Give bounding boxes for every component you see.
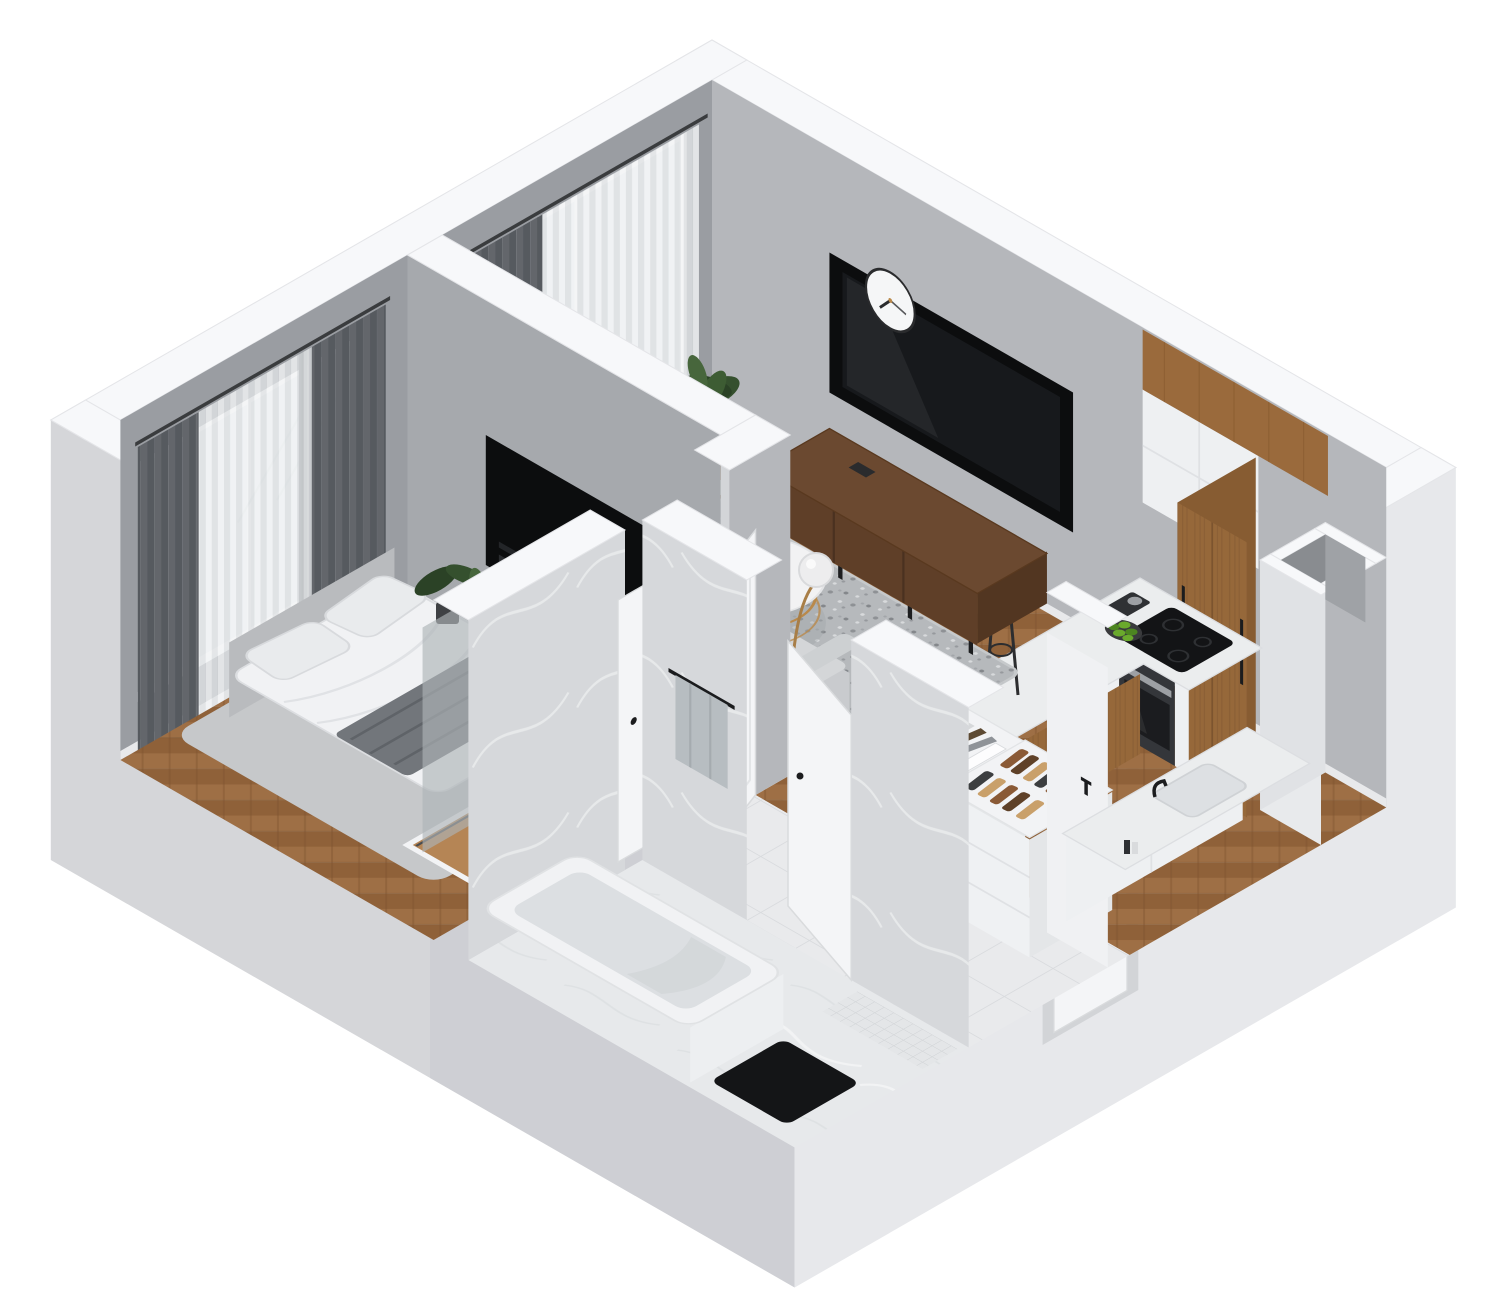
- entry-side-wall: [1047, 633, 1108, 968]
- floorplan-render: [0, 0, 1500, 1301]
- bathroom-door-handle: [797, 773, 804, 780]
- bedroom-drape-right: [138, 412, 199, 765]
- isometric-scene: [0, 0, 1500, 1301]
